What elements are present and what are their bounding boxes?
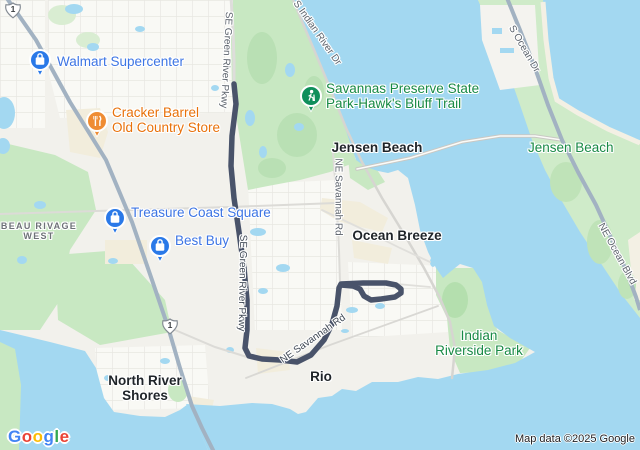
best-buy-label[interactable]: Best Buy (175, 234, 229, 249)
ocean-breeze-label: Ocean Breeze (352, 229, 441, 244)
savannas-preserve-pin[interactable] (298, 84, 324, 114)
treasure-coast-square-label[interactable]: Treasure Coast Square (131, 206, 271, 221)
jensen-beach-area-label[interactable]: Jensen Beach (528, 141, 614, 156)
best-buy-pin[interactable] (147, 234, 173, 264)
treasure-coast-square-pin[interactable] (102, 206, 128, 236)
jensen-beach-city-label: Jensen Beach (332, 141, 423, 156)
north-river-shores-label: North River Shores (108, 374, 182, 404)
map-canvas[interactable]: 1 1 (0, 0, 640, 450)
road-label-savannah-rd-vertical: NE Savannah Rd (333, 158, 344, 235)
us1-route-shield: 1 (4, 2, 22, 19)
rio-label: Rio (310, 370, 332, 385)
cracker-barrel-label[interactable]: Cracker Barrel Old Country Store (112, 106, 220, 136)
indian-riverside-park-label[interactable]: Indian Riverside Park (435, 329, 523, 359)
walmart-label[interactable]: Walmart Supercenter (57, 55, 184, 70)
road-label-green-river-pkwy-mid: SE Green River Pkwy (236, 235, 249, 332)
walmart-pin[interactable] (27, 48, 53, 78)
beau-rivage-west-label: BEAU RIVAGE WEST (1, 222, 77, 242)
shield-number: 1 (161, 320, 179, 330)
cracker-barrel-pin[interactable] (84, 109, 110, 139)
shield-number: 1 (4, 4, 22, 14)
savannas-preserve-label[interactable]: Savannas Preserve State Park-Hawk's Bluf… (326, 82, 479, 112)
us1-route-shield: 1 (161, 318, 179, 335)
google-logo[interactable]: Google (8, 427, 70, 447)
map-attribution: Map data ©2025 Google (515, 433, 635, 445)
